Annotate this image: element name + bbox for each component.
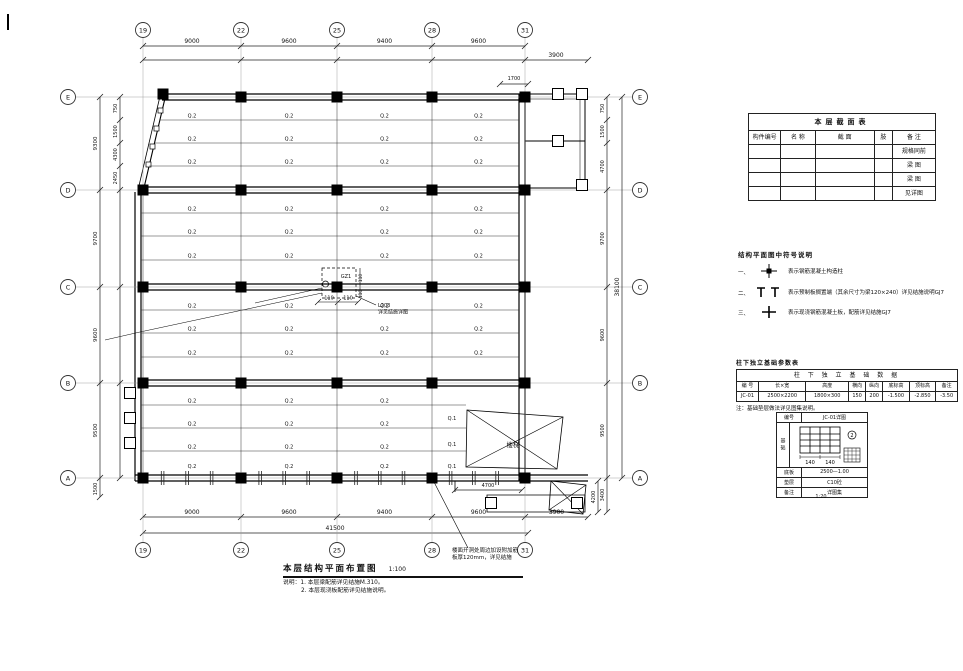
joist-label: Q.2 [380, 160, 389, 166]
dim-label: 9700 [93, 231, 99, 245]
grid-bubble-label: E [66, 93, 70, 101]
joist-label: Q.2 [188, 137, 197, 143]
dim-label: 9600 [281, 509, 296, 516]
dim-label: 9500 [93, 423, 99, 437]
joist-label: Q.2 [380, 114, 389, 120]
callout-text: L203 [378, 303, 390, 309]
dim-label: 2450 [113, 172, 119, 185]
column-marker [332, 378, 343, 389]
column-symbol-icon [754, 263, 784, 281]
dim-label: 3900 [548, 52, 563, 59]
cell [749, 173, 781, 187]
stair-label: 楼梯 [507, 440, 521, 449]
joist-label: Q.2 [380, 207, 389, 213]
pilaster-marker [486, 498, 497, 509]
chamfer-edge [138, 92, 166, 192]
detail-sketch: 2 140 140 [790, 423, 867, 467]
column-marker [427, 378, 438, 389]
joist-label: Q.2 [474, 254, 483, 260]
joist-label: Q.2 [188, 304, 197, 310]
cell [874, 159, 892, 173]
vertical-beams [143, 103, 432, 472]
cell: 200 [866, 392, 883, 402]
grid-bubble-label: B [66, 379, 70, 387]
stair-opening [466, 410, 563, 469]
column-marker [520, 282, 531, 293]
cell: 梁 图 [892, 173, 935, 187]
joist-label: Q.2 [188, 207, 197, 213]
detail-marker: 2 [850, 433, 853, 439]
column-marker [158, 89, 169, 100]
item-number: 二、 [738, 289, 750, 297]
section-table: 本层截面表 构件编号 名 称 截 面 肢 备 注 规格同前 梁 图 梁 图 见详… [748, 113, 936, 201]
symbol-note-item: 三、 表示现浇钢筋混凝土板，配筋详见结施GJ7 [738, 305, 958, 321]
column-marker [236, 92, 247, 103]
pilaster-marker [553, 89, 564, 100]
callout-dim: 110 [358, 290, 364, 299]
joist-label: Q.2 [188, 422, 197, 428]
callout-dim: 110 [324, 296, 334, 302]
col-header: 纵向 [866, 382, 883, 392]
pilaster-marker [577, 89, 588, 100]
pilaster-marker [125, 413, 136, 424]
dim-label: 9000 [184, 509, 199, 516]
col-header: 名 称 [781, 131, 815, 145]
column-marker [332, 473, 343, 484]
span-header: 柱 下 独 立 基 础 数 据 [737, 370, 958, 382]
column-marker [236, 473, 247, 484]
joist-label: Q.2 [474, 207, 483, 213]
joist-label: Q.2 [474, 327, 483, 333]
joist-label: Q.1 [448, 442, 457, 448]
dim-label: 1500 [600, 125, 606, 138]
joist-label: Q.1 [448, 416, 457, 422]
joist-label: Q.2 [380, 137, 389, 143]
column-marker [520, 185, 531, 196]
joist-label: Q.2 [285, 445, 294, 451]
cell [781, 159, 815, 173]
dim-label: 9600 [600, 329, 606, 342]
column-marker [138, 378, 149, 389]
cell [815, 187, 874, 201]
joist-label: Q.2 [188, 351, 197, 357]
grid-bubble-label: D [65, 186, 70, 194]
dim-label: 9600 [93, 328, 99, 342]
joist-label: Q.2 [285, 327, 294, 333]
column-marker [332, 185, 343, 196]
drawing-canvas: 9000960094009600390017009000960094009600… [0, 0, 963, 671]
grid-bubble-label: 25 [333, 546, 341, 554]
joist-label: Q.2 [188, 399, 197, 405]
col-header: 编 号 [737, 382, 759, 392]
symbol-note-item: 一、 表示钢筋混凝土构造柱 [738, 263, 958, 281]
joist-label: Q.2 [285, 160, 294, 166]
joist-label: Q.2 [188, 254, 197, 260]
foundation-detail: 编号 JC-01详图 基础 2 140 140 [776, 412, 868, 498]
joist-label: Q.2 [474, 304, 483, 310]
joist-label: Q.2 [474, 114, 483, 120]
detail-side-label: 基础 [777, 423, 790, 467]
grid-bubble-label: B [638, 379, 642, 387]
col-header: 构件编号 [749, 131, 781, 145]
joist-label: Q.2 [188, 114, 197, 120]
dim-label: 1700 [508, 76, 521, 82]
symbol-notes-title: 结构平面图中符号说明 [738, 249, 958, 259]
symbol-note-item: 二、 表示预制板搁置端（其余尺寸为梁120×240）详见结施说明GJ7 [738, 286, 958, 300]
drawing-scale: 1:100 [389, 566, 406, 573]
col-header: 高度 [806, 382, 849, 392]
joist-label: Q.2 [285, 422, 294, 428]
detail-row-value: 2500—1.00 [802, 468, 867, 477]
joist-label: Q.2 [380, 351, 389, 357]
cell: -3.50 [936, 392, 958, 402]
item-text: 表示钢筋混凝土构造柱 [788, 269, 958, 276]
grid-bubble-label: 31 [521, 26, 529, 34]
pilaster-marker [572, 498, 583, 509]
beam-end-symbol-icon [754, 286, 784, 300]
dim-label: 9300 [93, 136, 99, 150]
column-marker [138, 282, 149, 293]
drawing-title: 本层结构平面布置图 [283, 564, 378, 574]
cell: 150 [849, 392, 866, 402]
cell: 见详图 [892, 187, 935, 201]
grid-bubble-label: 25 [333, 26, 341, 34]
cell: JC-01 [737, 392, 759, 402]
cell [781, 173, 815, 187]
joist-label: Q.2 [188, 230, 197, 236]
grid-bubble-label: 28 [428, 546, 436, 554]
grid-bubble-label: 28 [428, 26, 436, 34]
drawing-note: 2. 本层现浇板配筋详见结施说明。 [283, 588, 523, 596]
detail-dim: 140 [825, 460, 835, 466]
column-marker [332, 92, 343, 103]
column-marker [427, 92, 438, 103]
column-marker [332, 282, 343, 293]
joist-label: Q.2 [285, 207, 294, 213]
dim-label: 4700 [600, 160, 606, 173]
pilaster-marker [577, 180, 588, 191]
joist-label: Q.2 [285, 254, 294, 260]
joist-label: Q.2 [380, 399, 389, 405]
joist-label: Q.2 [380, 327, 389, 333]
joist-label: Q.2 [188, 327, 197, 333]
joist-label: Q.2 [285, 230, 294, 236]
cell [815, 173, 874, 187]
grid-bubble-label: A [66, 474, 71, 482]
cell: 梁 图 [892, 159, 935, 173]
detail-scale: 1:20 [776, 494, 866, 500]
grid-bubble-label: D [637, 186, 642, 194]
cell: -1.500 [883, 392, 910, 402]
dim-label: 9400 [377, 509, 392, 516]
dim-label: 4700 [482, 483, 495, 489]
dim-label: 9400 [377, 38, 392, 45]
item-text: 表示现浇钢筋混凝土板，配筋详见结施GJ7 [788, 310, 958, 317]
pilaster-marker [125, 388, 136, 399]
dim-label: 9600 [471, 38, 486, 45]
dim-label: 1500 [113, 125, 119, 138]
column-marker [520, 92, 531, 103]
joist-label: Q.2 [285, 399, 294, 405]
joist-label: Q.2 [285, 464, 294, 470]
joist-label: Q.2 [380, 422, 389, 428]
column-marker [236, 282, 247, 293]
dim-label: 4200 [591, 491, 597, 504]
item-number: 一、 [738, 268, 750, 276]
detail-header-label: 编号 [777, 413, 802, 422]
cell: -2.850 [909, 392, 936, 402]
dim-label: 9600 [281, 38, 296, 45]
dim-label: 38100 [614, 277, 621, 296]
section-table-title: 本层截面表 [749, 114, 936, 131]
col-header: 顶标高 [909, 382, 936, 392]
dim-label: 41500 [325, 525, 344, 532]
detail-header-value: JC-01详图 [802, 413, 867, 422]
column-marker [520, 473, 531, 484]
detail-row-label: 底板 [777, 468, 802, 477]
symbol-notes: 结构平面图中符号说明 一、 表示钢筋混凝土构造柱 二、 表示预制板搁置端（其余尺… [738, 249, 958, 326]
slab-symbol-icon [754, 305, 784, 321]
joist-label: Q.2 [285, 137, 294, 143]
dim-label: 9500 [600, 424, 606, 437]
detail-row-value: C10砼 [802, 478, 867, 487]
col-header: 备 注 [892, 131, 935, 145]
foundation-table-caption: 柱下独立基础参数表 [736, 358, 958, 367]
cell: 1800×300 [806, 392, 849, 402]
callout-text: 详见结施详图 [378, 309, 408, 316]
detail-dim: 140 [805, 460, 815, 466]
joist-label: Q.2 [285, 114, 294, 120]
grid-bubble-label: 19 [139, 26, 147, 34]
joist-label: Q.2 [188, 464, 197, 470]
column-marker [138, 185, 149, 196]
joist-label: Q.2 [474, 351, 483, 357]
joist-label: Q.2 [285, 304, 294, 310]
item-text: 表示预制板搁置端（其余尺寸为梁120×240）详见结施说明GJ7 [788, 290, 958, 297]
grid-bubble-label: A [638, 474, 643, 482]
joist-label: Q.2 [380, 254, 389, 260]
column-marker [236, 378, 247, 389]
leader-line [434, 482, 468, 548]
pilaster-marker [125, 438, 136, 449]
foundation-table-note: 注：基础垫层做法详见图集说明。 [736, 404, 958, 412]
joist-label: Q.2 [188, 160, 197, 166]
drawing-note: 说明：1. 本层梁配筋详见结施M.310。 [283, 580, 523, 588]
cell: 2500×2200 [758, 392, 806, 402]
col-header: 截 面 [815, 131, 874, 145]
column-marker [138, 473, 149, 484]
cell: 规格同前 [892, 145, 935, 159]
joist-label: Q.2 [380, 445, 389, 451]
joist-label: Q.2 [474, 137, 483, 143]
column-marker [236, 185, 247, 196]
dim-label: 9000 [184, 38, 199, 45]
callout-dim: 110 [343, 296, 353, 302]
col-header: 横向 [849, 382, 866, 392]
grid-bubble-label: E [638, 93, 642, 101]
detail-row-label: 垫层 [777, 478, 802, 487]
joist-label: Q.1 [448, 464, 457, 470]
dim-label: 3400 [600, 489, 606, 502]
callout-dim: 110 [358, 274, 364, 283]
column-marker [520, 378, 531, 389]
joist-label: Q.2 [474, 160, 483, 166]
foundation-table-block: 柱下独立基础参数表 柱 下 独 立 基 础 数 据 编 号 长×宽 高度 横向 … [736, 358, 958, 412]
pilaster-marker [553, 136, 564, 147]
dim-label: 3900 [549, 509, 564, 516]
joist-label: Q.2 [474, 230, 483, 236]
cell [815, 145, 874, 159]
grid-bubble-label: C [66, 283, 71, 291]
dim-label: 9700 [600, 232, 606, 245]
cell [815, 159, 874, 173]
cell [749, 187, 781, 201]
cell [874, 145, 892, 159]
cell [781, 145, 815, 159]
callout-tag: GZ1 [341, 274, 351, 280]
joist-label: Q.2 [188, 445, 197, 451]
cell [749, 145, 781, 159]
item-number: 三、 [738, 309, 750, 317]
col-header: 备注 [936, 382, 958, 392]
leader-note-line: 板厚120mm，详见结施 [452, 555, 572, 562]
dim-label: 4300 [113, 148, 119, 161]
detail-callout [105, 268, 376, 340]
joist-label: Q.2 [285, 351, 294, 357]
joist-label: Q.2 [380, 230, 389, 236]
grid-bubble-label: 22 [237, 546, 245, 554]
cell [874, 173, 892, 187]
leader-annotation: 楼面开洞处周边加设附加筋 板厚120mm，详见结施 [452, 548, 572, 562]
grid-bubble-label: 19 [139, 546, 147, 554]
cell [749, 159, 781, 173]
grid-bubble-label: C [638, 283, 643, 291]
col-header: 长×宽 [758, 382, 806, 392]
cell [874, 187, 892, 201]
column-marker [427, 473, 438, 484]
column-marker [427, 282, 438, 293]
foundation-sketch: 2 140 140 [792, 424, 866, 466]
column-marker [427, 185, 438, 196]
dim-label: 750 [113, 104, 119, 114]
cell [781, 187, 815, 201]
dim-label: 750 [600, 104, 606, 114]
col-header: 底标高 [883, 382, 910, 392]
dim-label: 1500 [93, 483, 99, 496]
grid-bubble-label: 22 [237, 26, 245, 34]
col-header: 肢 [874, 131, 892, 145]
joist-label: Q.2 [380, 464, 389, 470]
dim-label: 9600 [471, 509, 486, 516]
